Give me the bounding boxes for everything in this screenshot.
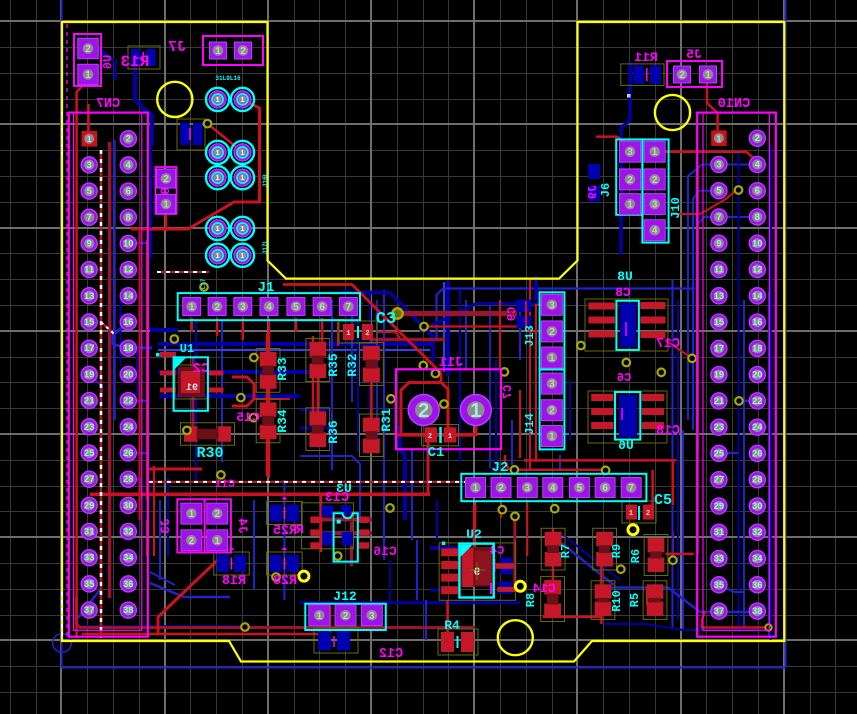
svg-text:7: 7 [346, 302, 352, 313]
svg-text:11: 11 [84, 265, 95, 276]
svg-text:4: 4 [126, 160, 132, 171]
svg-text:10: 10 [123, 239, 134, 250]
svg-text:35: 35 [84, 579, 95, 590]
svg-text:21: 21 [714, 396, 725, 407]
svg-text:17: 17 [84, 343, 95, 354]
svg-text:1: 1 [241, 175, 245, 182]
svg-text:1: 1 [216, 226, 220, 233]
svg-text:2: 2 [214, 302, 220, 313]
svg-text:R6: R6 [629, 549, 643, 563]
svg-text:L17: L17 [200, 278, 207, 289]
svg-text:3: 3 [652, 200, 658, 211]
svg-text:1: 1 [241, 97, 245, 104]
svg-text:3: 3 [87, 160, 92, 171]
svg-text:1: 1 [473, 483, 479, 494]
svg-text:C11: C11 [215, 479, 235, 491]
svg-text:C3: C3 [376, 310, 396, 329]
svg-text:13: 13 [84, 291, 95, 302]
svg-text:20: 20 [123, 369, 134, 380]
svg-text:U6: U6 [101, 55, 115, 69]
svg-text:R8: R8 [524, 593, 538, 607]
svg-text:1: 1 [241, 150, 245, 157]
svg-text:1: 1 [189, 509, 195, 520]
svg-text:29: 29 [84, 500, 95, 511]
svg-text:32: 32 [123, 527, 134, 538]
svg-text:15: 15 [84, 317, 95, 328]
svg-text:24: 24 [123, 422, 134, 433]
svg-text:CN10: CN10 [718, 97, 750, 112]
svg-text:17: 17 [714, 343, 725, 354]
svg-text:C1: C1 [428, 445, 445, 461]
svg-text:R35: R35 [326, 353, 341, 377]
svg-text:U1: U1 [180, 342, 194, 356]
svg-text:14: 14 [123, 291, 134, 302]
svg-text:U8: U8 [617, 269, 633, 284]
svg-text:R9: R9 [610, 544, 624, 558]
svg-text:31: 31 [714, 527, 725, 538]
svg-text:R31: R31 [379, 408, 394, 432]
svg-text:24: 24 [752, 422, 763, 433]
svg-text:15: 15 [714, 317, 725, 328]
svg-text:28: 28 [123, 474, 134, 485]
svg-text:31: 31 [84, 527, 95, 538]
svg-text:19: 19 [84, 369, 95, 380]
svg-text:6: 6 [755, 186, 760, 197]
svg-text:U6: U6 [618, 438, 634, 453]
svg-text:38: 38 [123, 605, 134, 616]
svg-text:18: 18 [123, 343, 134, 354]
svg-text:U3: U3 [336, 481, 352, 496]
svg-text:R4: R4 [444, 618, 460, 633]
svg-text:3: 3 [525, 483, 531, 494]
svg-text:2: 2 [627, 175, 633, 186]
svg-text:2: 2 [549, 327, 555, 338]
svg-text:1: 1 [629, 510, 633, 518]
svg-text:R34: R34 [275, 409, 290, 433]
svg-text:23: 23 [84, 422, 95, 433]
svg-text:31L9L16: 31L9L16 [215, 75, 241, 82]
svg-text:R28: R28 [273, 574, 297, 589]
svg-text:1: 1 [189, 302, 195, 313]
svg-text:26: 26 [123, 448, 134, 459]
svg-text:2: 2 [646, 510, 650, 518]
svg-text:J6: J6 [599, 183, 613, 197]
svg-text:1: 1 [215, 46, 221, 57]
svg-text:5: 5 [87, 186, 93, 197]
svg-text:8: 8 [755, 212, 760, 223]
svg-text:C12: C12 [379, 647, 403, 662]
svg-text:2: 2 [679, 70, 685, 81]
svg-text:J11: J11 [439, 356, 463, 371]
svg-text:C5: C5 [654, 492, 672, 509]
svg-text:R5: R5 [628, 593, 642, 607]
svg-text:1: 1 [216, 175, 220, 182]
svg-text:R11: R11 [634, 50, 658, 65]
svg-text:2: 2 [126, 134, 131, 145]
svg-text:19: 19 [714, 370, 725, 381]
svg-text:2: 2 [755, 133, 760, 144]
svg-text:1: 1 [317, 611, 323, 622]
svg-text:36: 36 [752, 580, 763, 591]
svg-text:10: 10 [752, 238, 763, 249]
svg-text:13: 13 [714, 291, 725, 302]
svg-text:1: 1 [216, 253, 220, 260]
svg-text:6: 6 [319, 302, 325, 313]
svg-text:R10: R10 [610, 590, 624, 612]
svg-text:16: 16 [752, 317, 763, 328]
svg-text:R30: R30 [196, 445, 223, 462]
svg-text:7: 7 [87, 212, 92, 223]
svg-text:29: 29 [714, 501, 725, 512]
svg-text:20: 20 [752, 370, 763, 381]
svg-text:8: 8 [126, 212, 131, 223]
svg-text:6: 6 [126, 186, 131, 197]
svg-text:12: 12 [123, 265, 134, 276]
svg-text:34: 34 [752, 554, 763, 565]
svg-text:1: 1 [470, 400, 481, 422]
svg-text:2: 2 [240, 46, 246, 57]
svg-text:C7: C7 [501, 385, 515, 399]
svg-text:25: 25 [714, 448, 725, 459]
svg-text:25: 25 [84, 448, 95, 459]
svg-text:J9: J9 [586, 185, 600, 199]
svg-text:2: 2 [343, 611, 349, 622]
svg-text:7: 7 [628, 483, 634, 494]
svg-text:1: 1 [652, 147, 658, 158]
svg-text:30: 30 [123, 500, 134, 511]
svg-text:26: 26 [752, 448, 763, 459]
svg-text:1: 1 [717, 133, 722, 143]
svg-text:38: 38 [752, 606, 763, 617]
svg-text:R7: R7 [559, 544, 573, 558]
svg-text:3: 3 [549, 300, 555, 311]
svg-text:R25: R25 [273, 524, 297, 539]
svg-text:32: 32 [752, 527, 763, 538]
svg-text:2: 2 [652, 175, 658, 186]
svg-text:23: 23 [714, 422, 725, 433]
svg-text:C4: C4 [490, 544, 504, 558]
svg-text:C2: C2 [193, 361, 210, 377]
svg-text:37: 37 [714, 606, 725, 617]
svg-text:2: 2 [85, 44, 91, 55]
svg-text:3: 3 [716, 160, 721, 171]
svg-text:1: 1 [705, 70, 711, 81]
svg-text:34: 34 [123, 553, 134, 564]
svg-text:R18: R18 [222, 574, 246, 589]
svg-text:R: R [296, 522, 304, 537]
svg-text:11: 11 [714, 265, 725, 276]
svg-text:91: 91 [186, 383, 198, 394]
svg-text:18: 18 [752, 343, 763, 354]
svg-text:3: 3 [240, 302, 246, 313]
svg-text:12: 12 [752, 265, 763, 276]
svg-text:2: 2 [428, 433, 432, 441]
svg-text:2: 2 [365, 330, 369, 338]
svg-text:1: 1 [216, 97, 220, 104]
svg-text:4: 4 [755, 160, 761, 171]
svg-text:C8: C8 [615, 285, 631, 300]
svg-text:R32: R32 [345, 353, 360, 377]
svg-text:30: 30 [752, 501, 763, 512]
svg-text:9: 9 [716, 238, 721, 249]
svg-text:3: 3 [549, 379, 555, 390]
svg-text:9: 9 [87, 239, 92, 250]
svg-text:5: 5 [293, 302, 299, 313]
svg-text:J2: J2 [492, 460, 509, 476]
svg-text:2: 2 [163, 174, 169, 185]
svg-text:J4: J4 [235, 518, 250, 534]
svg-text:C16: C16 [373, 544, 397, 559]
svg-text:21: 21 [84, 396, 95, 407]
svg-text:2: 2 [189, 536, 195, 547]
svg-text:1: 1 [549, 432, 555, 443]
svg-text:6: 6 [602, 483, 608, 494]
svg-text:J1: J1 [258, 280, 275, 296]
svg-text:22: 22 [752, 396, 763, 407]
svg-text:1: 1 [241, 226, 245, 233]
svg-text:36: 36 [123, 579, 134, 590]
svg-text:4: 4 [652, 226, 658, 237]
svg-text:J16L: J16L [262, 172, 269, 187]
svg-text:1: 1 [448, 433, 452, 441]
svg-text:J5: J5 [686, 47, 702, 62]
svg-text:J14: J14 [523, 413, 537, 435]
svg-text:5: 5 [577, 483, 583, 494]
svg-text:37: 37 [84, 605, 95, 616]
svg-text:33: 33 [84, 553, 95, 564]
svg-text:1: 1 [87, 134, 92, 144]
svg-text:2: 2 [418, 400, 429, 422]
svg-text:5: 5 [716, 186, 722, 197]
svg-text:1: 1 [214, 536, 220, 547]
svg-text:1: 1 [85, 70, 91, 81]
svg-text:J7: J7 [168, 39, 186, 56]
svg-text:3: 3 [369, 611, 375, 622]
svg-text:J17L: J17L [262, 239, 269, 254]
svg-text:33: 33 [714, 554, 725, 565]
svg-text:4: 4 [550, 483, 556, 494]
svg-text:22: 22 [123, 396, 134, 407]
svg-text:2: 2 [549, 406, 555, 417]
svg-text:1: 1 [241, 253, 245, 260]
svg-text:J13: J13 [523, 325, 537, 347]
svg-text:28: 28 [752, 475, 763, 486]
svg-text:U2: U2 [466, 527, 482, 542]
svg-text:C15: C15 [236, 410, 260, 425]
svg-text:C17: C17 [656, 337, 680, 352]
svg-text:7: 7 [716, 212, 721, 223]
svg-text:2: 2 [214, 509, 220, 520]
svg-text:4: 4 [266, 302, 272, 313]
svg-text:1: 1 [346, 330, 350, 338]
svg-text:27: 27 [714, 475, 725, 486]
svg-text:C6: C6 [617, 371, 631, 385]
svg-text:J10: J10 [669, 197, 683, 219]
svg-text:3: 3 [627, 147, 633, 158]
svg-text:14: 14 [752, 291, 763, 302]
svg-text:1: 1 [549, 353, 555, 364]
svg-text:C18: C18 [656, 424, 680, 439]
svg-text:27: 27 [84, 474, 95, 485]
svg-text:C9: C9 [505, 307, 519, 321]
svg-text:J12: J12 [333, 589, 357, 604]
svg-text:1: 1 [627, 200, 633, 211]
svg-text:R13: R13 [121, 53, 150, 71]
svg-text:1: 1 [216, 150, 220, 157]
svg-text:2: 2 [498, 483, 504, 494]
svg-text:35: 35 [714, 580, 725, 591]
svg-text:1: 1 [163, 200, 169, 211]
svg-text:J3: J3 [158, 518, 173, 534]
svg-text:R33: R33 [275, 357, 290, 381]
svg-text:R36: R36 [326, 420, 341, 444]
svg-text:CN7: CN7 [96, 97, 120, 112]
svg-text:16: 16 [123, 317, 134, 328]
